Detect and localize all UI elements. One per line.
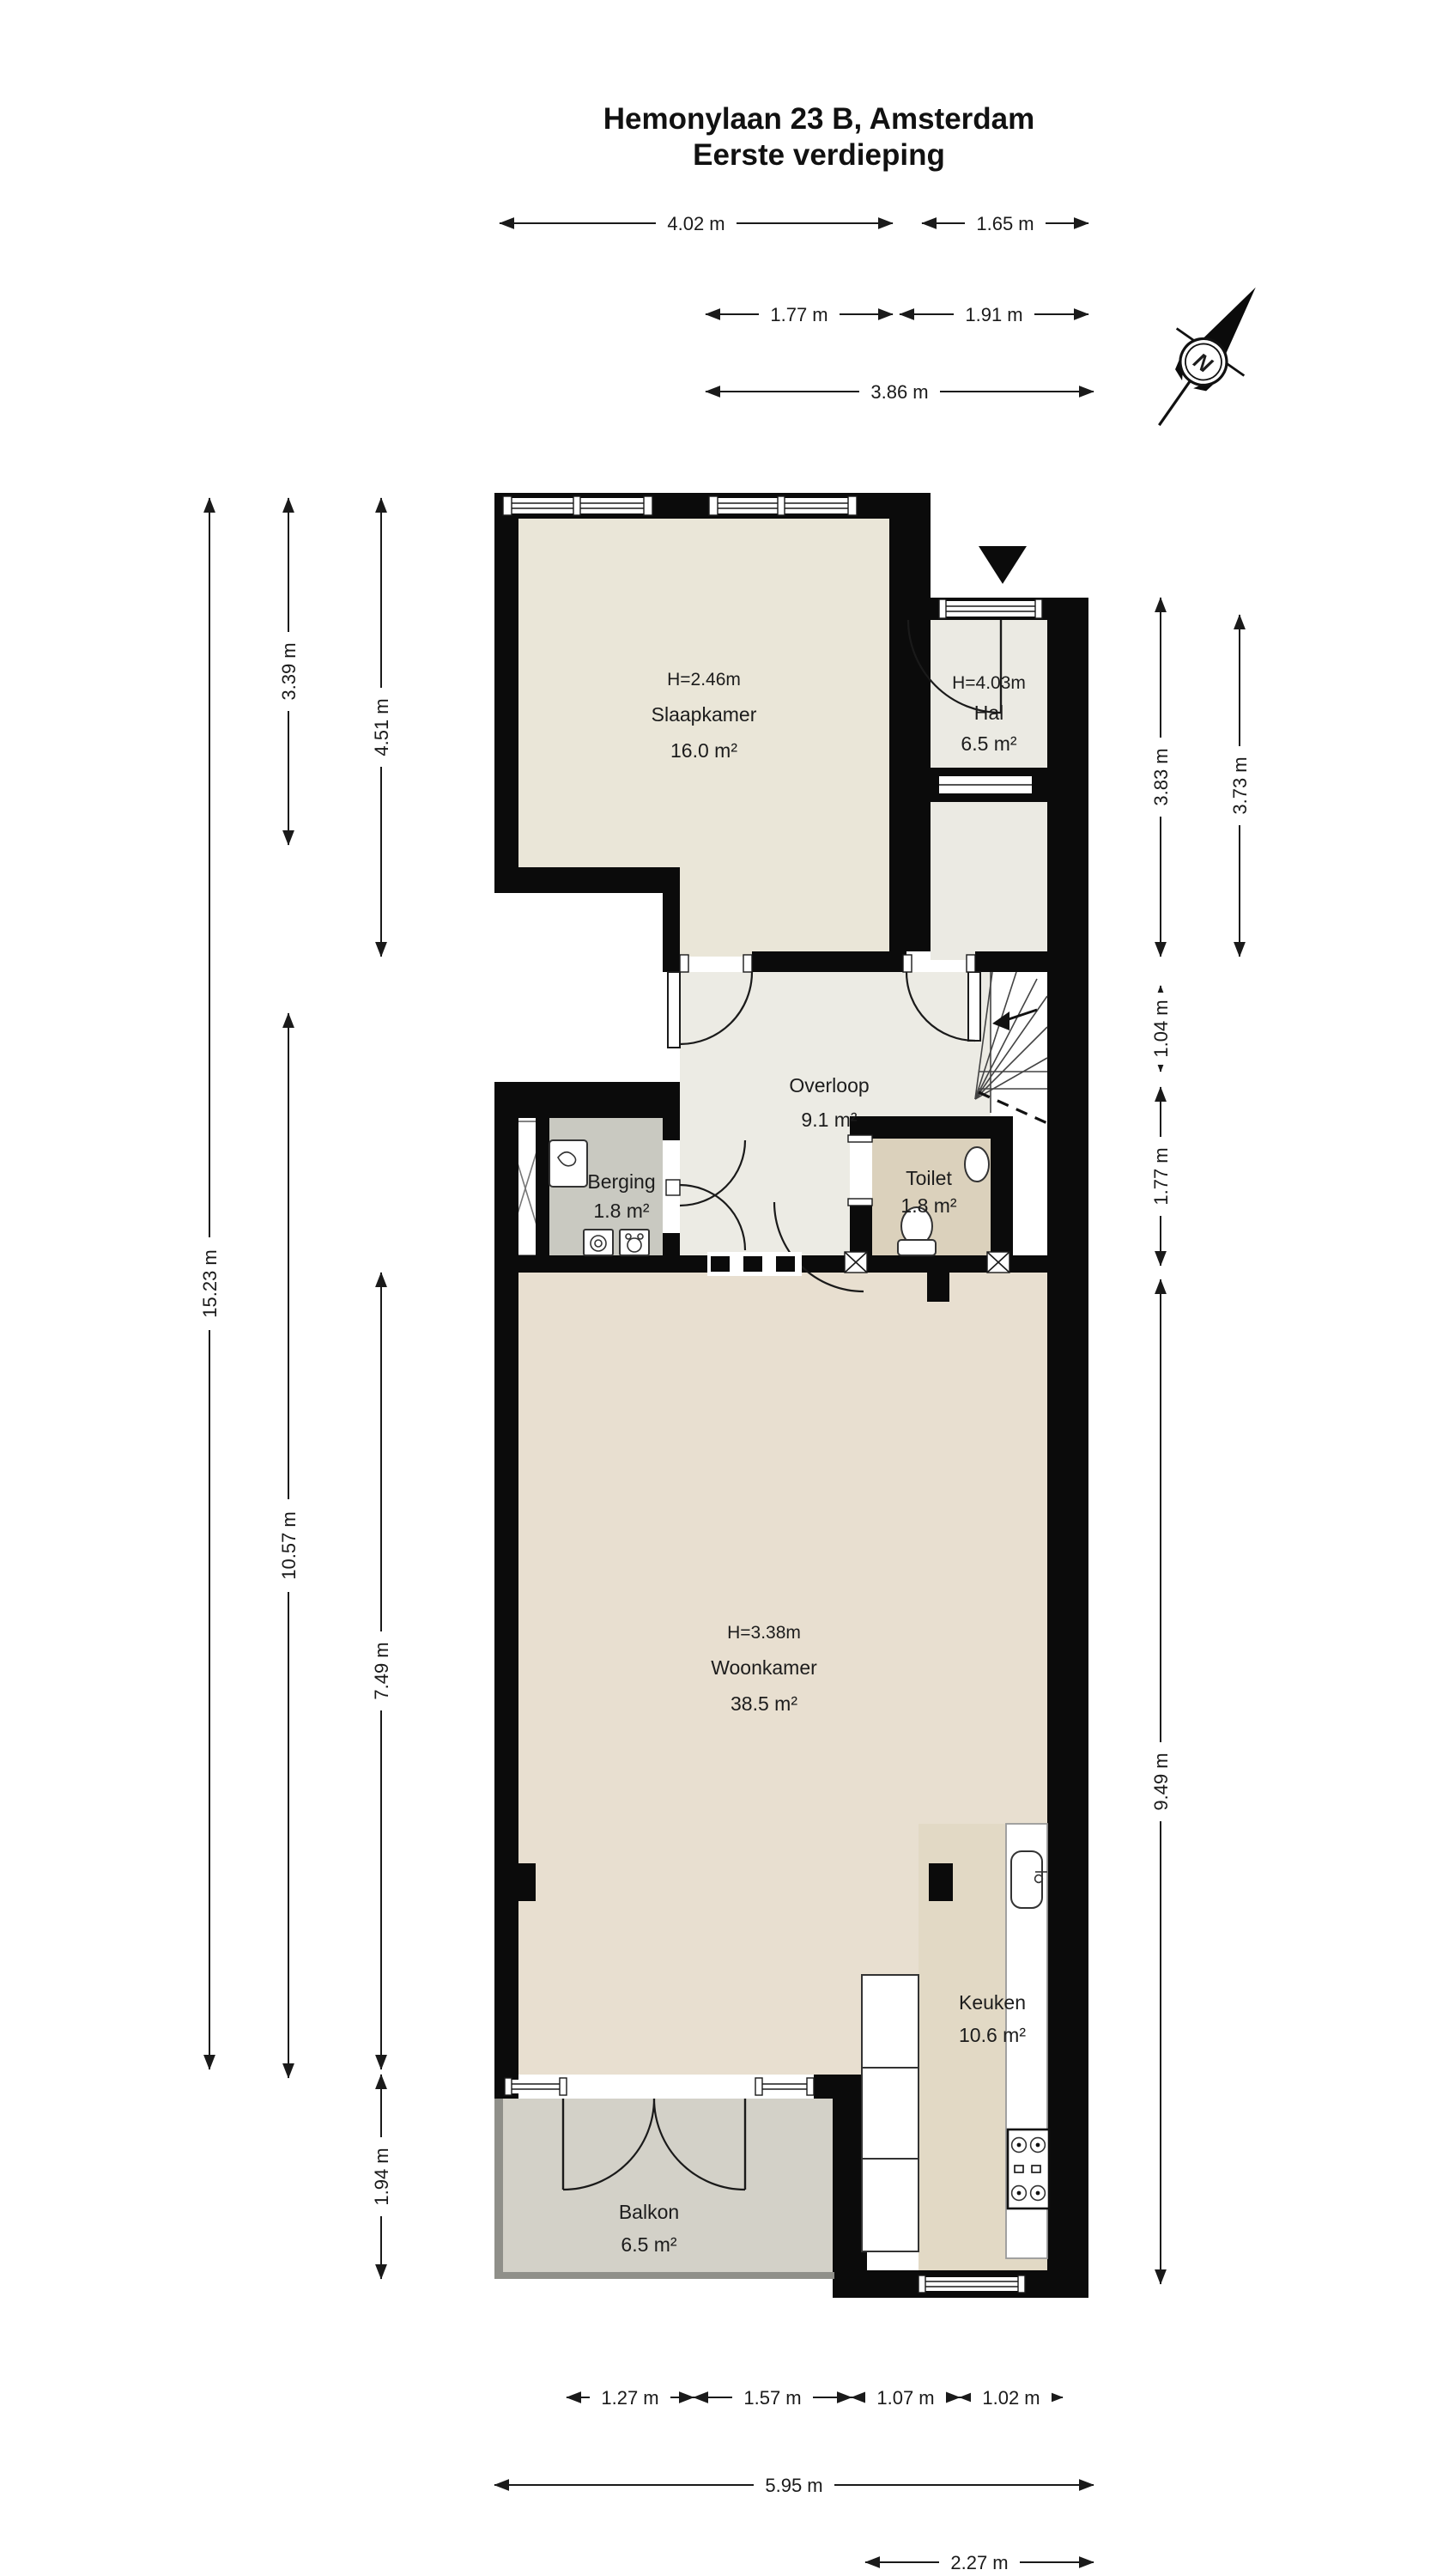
svg-text:6.5 m²: 6.5 m² bbox=[961, 732, 1017, 755]
svg-text:Berging: Berging bbox=[587, 1170, 655, 1193]
dim-top-4: 1.91 m bbox=[900, 301, 1088, 326]
wall-balkon-pier bbox=[814, 2075, 833, 2099]
dim-left-1: 15.23 m bbox=[197, 498, 222, 2069]
slaapkamer-floor-tongue bbox=[680, 867, 889, 957]
dimensions-top: 4.02 m 1.65 m 1.77 m 1.91 m 3.86 m bbox=[500, 210, 1094, 404]
svg-text:H=2.46m: H=2.46m bbox=[667, 670, 741, 690]
wall-left-lower bbox=[494, 1082, 518, 2099]
svg-text:9.49 m: 9.49 m bbox=[1150, 1753, 1172, 1810]
wall-berging-right-bottom bbox=[663, 1233, 680, 1255]
dim-top-2: 1.65 m bbox=[922, 210, 1088, 235]
dim-bottom-6: 2.27 m bbox=[865, 2549, 1094, 2574]
kitchen-sink-icon bbox=[1011, 1851, 1047, 1908]
wall-berging-right-top bbox=[663, 1118, 680, 1140]
svg-text:Balkon: Balkon bbox=[619, 2201, 679, 2223]
svg-text:1.27 m: 1.27 m bbox=[601, 2387, 658, 2409]
svg-text:1.77 m: 1.77 m bbox=[1150, 1147, 1172, 1205]
balkon-rail-bottom bbox=[494, 2272, 834, 2279]
vent-hatch-left bbox=[845, 1252, 867, 1273]
wall-stub-left bbox=[518, 1863, 536, 1901]
washer-icon bbox=[584, 1230, 613, 1255]
svg-text:3.39 m: 3.39 m bbox=[278, 642, 300, 700]
dim-bottom-4: 1.02 m bbox=[960, 2385, 1063, 2409]
slaapkamer-floor bbox=[508, 508, 889, 872]
svg-text:4.51 m: 4.51 m bbox=[371, 698, 392, 756]
svg-text:1.77 m: 1.77 m bbox=[770, 304, 828, 325]
kitchen-stove-icon bbox=[1008, 2129, 1049, 2208]
hal-entry-window bbox=[939, 599, 1042, 618]
svg-text:1.04 m: 1.04 m bbox=[1150, 999, 1172, 1057]
svg-text:1.57 m: 1.57 m bbox=[743, 2387, 801, 2409]
dim-bottom-2: 1.57 m bbox=[694, 2385, 852, 2409]
dim-right-3: 1.04 m bbox=[1148, 986, 1173, 1072]
wall-toilet-right bbox=[991, 1116, 1013, 1273]
svg-text:H=3.38m: H=3.38m bbox=[727, 1623, 801, 1643]
svg-text:38.5 m²: 38.5 m² bbox=[731, 1692, 797, 1715]
dim-right-1: 3.83 m bbox=[1148, 598, 1173, 957]
boiler-icon bbox=[549, 1140, 587, 1187]
wall-jog bbox=[663, 867, 680, 972]
svg-text:7.49 m: 7.49 m bbox=[371, 1642, 392, 1699]
dim-bottom-1: 1.27 m bbox=[567, 2385, 694, 2409]
svg-text:1.65 m: 1.65 m bbox=[976, 213, 1034, 234]
svg-text:5.95 m: 5.95 m bbox=[765, 2475, 822, 2496]
svg-text:Keuken: Keuken bbox=[959, 1991, 1026, 2014]
svg-text:H=4.03m: H=4.03m bbox=[952, 673, 1026, 693]
svg-text:Overloop: Overloop bbox=[789, 1074, 869, 1097]
dim-right-4: 1.77 m bbox=[1148, 1087, 1173, 1266]
balkon-rail-left bbox=[494, 2099, 503, 2275]
dimensions-right: 3.83 m 3.73 m 1.04 m 1.77 m 9.49 m bbox=[1148, 598, 1252, 2284]
wall-slaapkamer-bottom bbox=[494, 867, 680, 893]
dimensions-left: 15.23 m 3.39 m 10.57 m 4.51 m 7.49 m 1.9… bbox=[197, 498, 394, 2279]
wall-toilet-top bbox=[850, 1116, 1013, 1139]
dim-right-5: 9.49 m bbox=[1148, 1279, 1173, 2284]
slaapkamer-window-1 bbox=[503, 496, 652, 515]
svg-text:10.6 m²: 10.6 m² bbox=[959, 2024, 1026, 2046]
svg-text:2.27 m: 2.27 m bbox=[950, 2552, 1008, 2573]
wall-woonkamer-top-left bbox=[494, 1255, 707, 1273]
open-passage-dashed bbox=[707, 1252, 802, 1276]
dim-right-2: 3.73 m bbox=[1227, 615, 1252, 957]
dim-top-3: 1.77 m bbox=[706, 301, 893, 326]
svg-text:1.94 m: 1.94 m bbox=[371, 2148, 392, 2205]
svg-text:Toilet: Toilet bbox=[906, 1167, 952, 1189]
hal-landing-floor bbox=[931, 802, 1047, 960]
svg-text:1.8 m²: 1.8 m² bbox=[593, 1200, 650, 1222]
svg-text:16.0 m²: 16.0 m² bbox=[670, 739, 737, 762]
stairs-floor bbox=[991, 972, 1047, 1127]
svg-text:15.23 m: 15.23 m bbox=[199, 1249, 221, 1318]
svg-text:3.83 m: 3.83 m bbox=[1150, 748, 1172, 805]
svg-text:3.86 m: 3.86 m bbox=[870, 381, 928, 403]
wall-slaapkamer-hal bbox=[889, 493, 931, 951]
svg-text:6.5 m²: 6.5 m² bbox=[621, 2233, 677, 2256]
floor-plan-svg: Hemonylaan 23 B, Amsterdam Eerste verdie… bbox=[0, 0, 1449, 2576]
dim-bottom-5: 5.95 m bbox=[494, 2472, 1094, 2497]
svg-text:Woonkamer: Woonkamer bbox=[711, 1656, 817, 1679]
svg-text:3.73 m: 3.73 m bbox=[1229, 756, 1251, 814]
entry-arrow-icon bbox=[979, 546, 1027, 584]
svg-text:10.57 m: 10.57 m bbox=[278, 1511, 300, 1580]
compass-icon: N bbox=[1125, 264, 1289, 449]
svg-text:1.07 m: 1.07 m bbox=[876, 2387, 934, 2409]
svg-text:1.8 m²: 1.8 m² bbox=[900, 1194, 957, 1217]
plan-subtitle: Eerste verdieping bbox=[693, 138, 945, 172]
wall-shaft-berging bbox=[536, 1118, 549, 1255]
dimensions-bottom: 1.27 m 1.57 m 1.07 m 1.02 m 5.95 m 2.27 … bbox=[494, 2385, 1094, 2574]
wall-left-upper bbox=[494, 493, 518, 893]
wall-stub-below bbox=[927, 1273, 949, 1302]
balkon-door-window-band bbox=[505, 2078, 814, 2095]
wall-right bbox=[1047, 598, 1088, 2298]
svg-text:9.1 m²: 9.1 m² bbox=[801, 1109, 858, 1131]
dim-left-5: 7.49 m bbox=[368, 1273, 394, 2069]
hal-partition-glazing bbox=[939, 776, 1032, 793]
kitchen-island bbox=[862, 1975, 919, 2251]
plan-title: Hemonylaan 23 B, Amsterdam bbox=[603, 102, 1035, 136]
slaapkamer-window-2 bbox=[709, 496, 857, 515]
toilet-sink-icon bbox=[965, 1147, 989, 1182]
keuken-bottom-window bbox=[919, 2275, 1025, 2293]
wall-above-berging bbox=[494, 1082, 680, 1118]
dim-top-5: 3.86 m bbox=[706, 379, 1094, 404]
dim-bottom-3: 1.07 m bbox=[852, 2385, 960, 2409]
svg-text:1.02 m: 1.02 m bbox=[982, 2387, 1040, 2409]
dim-left-2: 3.39 m bbox=[276, 498, 301, 845]
dim-left-3: 10.57 m bbox=[276, 1013, 301, 2078]
svg-text:4.02 m: 4.02 m bbox=[667, 213, 724, 234]
vent-hatch-right bbox=[987, 1252, 1009, 1273]
dim-top-1: 4.02 m bbox=[500, 210, 893, 235]
wall-landing-right bbox=[975, 951, 1047, 972]
dryer-icon bbox=[620, 1230, 649, 1255]
wall-landing-mid bbox=[752, 951, 906, 972]
dim-left-4: 4.51 m bbox=[368, 498, 394, 957]
svg-text:1.91 m: 1.91 m bbox=[965, 304, 1022, 325]
floorplan-page: Hemonylaan 23 B, Amsterdam Eerste verdie… bbox=[0, 0, 1449, 2576]
svg-text:Slaapkamer: Slaapkamer bbox=[652, 703, 757, 726]
svg-text:Hal: Hal bbox=[974, 702, 1004, 724]
wall-stub-mid bbox=[929, 1863, 953, 1901]
dim-left-6: 1.94 m bbox=[368, 2075, 394, 2279]
